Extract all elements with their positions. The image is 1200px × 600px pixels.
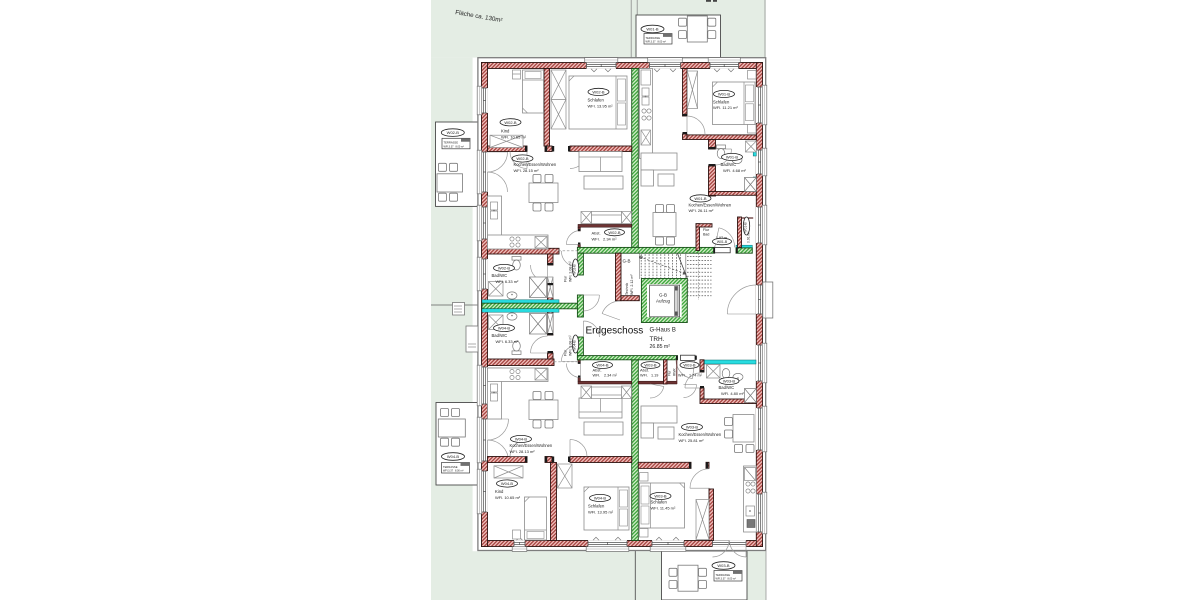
svg-text:W03-B: W03-B: [717, 563, 730, 568]
svg-text:WFl.3.37 8.00 m²: WFl.3.37 8.00 m²: [444, 146, 465, 149]
svg-text:Bad/WC: Bad/WC: [492, 273, 508, 278]
svg-text:Schlafen: Schlafen: [588, 98, 605, 103]
svg-text:W04-B: W04-B: [594, 496, 607, 501]
svg-text:Kochen/Essen/Wohnen: Kochen/Essen/Wohnen: [514, 162, 557, 167]
svg-text:TERRASSE: TERRASSE: [443, 465, 458, 469]
svg-text:Schlafen: Schlafen: [651, 500, 668, 505]
svg-text:Flur: Flur: [668, 370, 672, 376]
svg-text:Kind: Kind: [501, 129, 510, 134]
svg-text:Schlafen: Schlafen: [713, 99, 730, 104]
svg-text:WFl. 28.15 m²: WFl. 28.15 m²: [514, 168, 540, 173]
svg-text:WFl. 4.80 m²: WFl. 4.80 m²: [721, 391, 745, 396]
svg-text:W01-B: W01-B: [726, 155, 739, 160]
svg-text:W02-B: W02-B: [592, 89, 605, 94]
svg-text:1.19: 1.19: [651, 373, 658, 377]
svg-text:W02-B: W02-B: [608, 230, 621, 235]
svg-text:W02-B: W02-B: [447, 130, 460, 135]
svg-text:WFl. 13.95 m²: WFl. 13.95 m²: [588, 509, 614, 514]
svg-text:TRH.: TRH.: [650, 336, 665, 343]
svg-text:0.91 m²: 0.91 m²: [747, 231, 751, 243]
svg-text:W02-B: W02-B: [498, 266, 511, 271]
svg-text:W01-B: W01-B: [744, 222, 748, 233]
svg-text:WFl. 11.45 m²: WFl. 11.45 m²: [651, 505, 676, 510]
svg-text:W03-B: W03-B: [654, 494, 667, 499]
svg-text:Bad/WC: Bad/WC: [492, 333, 508, 338]
svg-text:Kochen/Essen/Wohnen: Kochen/Essen/Wohnen: [510, 443, 553, 448]
svg-text:RWR: RWR: [673, 368, 677, 376]
svg-text:Technik: Technik: [625, 283, 629, 295]
svg-text:WFl. 6.33 m²: WFl. 6.33 m²: [496, 339, 520, 344]
svg-text:WFl. 6.33 m²: WFl. 6.33 m²: [496, 279, 520, 284]
svg-text:W02-B: W02-B: [573, 264, 577, 275]
svg-text:Abst.: Abst.: [640, 368, 649, 373]
svg-text:Bad/WC: Bad/WC: [719, 385, 735, 390]
svg-text:W01-B: W01-B: [717, 240, 728, 244]
svg-text:Bad/WC: Bad/WC: [721, 162, 737, 167]
svg-text:W04-B: W04-B: [498, 326, 511, 331]
svg-text:W04-B: W04-B: [515, 437, 528, 442]
svg-text:WFl.3.37 8.00 m²: WFl.3.37 8.00 m²: [716, 578, 737, 581]
svg-text:Schlafen: Schlafen: [588, 504, 605, 509]
svg-text:G-Haus B: G-Haus B: [650, 328, 676, 334]
svg-text:W04-B: W04-B: [447, 454, 460, 459]
svg-text:WFl. 10.65 m²: WFl. 10.65 m²: [495, 495, 521, 500]
svg-text:WFl. 11.21 m²: WFl. 11.21 m²: [713, 105, 738, 110]
svg-text:WFl.: WFl.: [678, 373, 686, 377]
svg-text:WFl. 28.13 m²: WFl. 28.13 m²: [510, 449, 536, 454]
svg-text:Abst.: Abst.: [593, 368, 602, 373]
svg-text:1.74 m²: 1.74 m²: [689, 373, 703, 377]
svg-text:WFl. 4.68 m²: WFl. 4.68 m²: [723, 168, 747, 173]
svg-text:WFl. 13.95 m²: WFl. 13.95 m²: [588, 103, 614, 108]
svg-text:TERRASSE: TERRASSE: [716, 573, 731, 577]
svg-text:W04-B: W04-B: [501, 481, 514, 486]
svg-text:Bad: Bad: [703, 233, 709, 237]
svg-text:Erdgeschoss: Erdgeschoss: [586, 326, 644, 337]
svg-text:WFl.3.37 8.00 m²: WFl.3.37 8.00 m²: [646, 41, 667, 44]
svg-text:Aufzug: Aufzug: [656, 299, 671, 304]
svg-text:WFl. 25.81 m²: WFl. 25.81 m²: [679, 438, 705, 443]
svg-text:G-B: G-B: [659, 293, 667, 298]
svg-text:W04-B: W04-B: [573, 340, 577, 351]
svg-text:2.34 m²: 2.34 m²: [604, 373, 618, 377]
svg-text:W01-B: W01-B: [646, 27, 659, 32]
svg-text:WFl. 10.65 m²: WFl. 10.65 m²: [501, 134, 527, 139]
svg-text:WFl. 26.11 m²: WFl. 26.11 m²: [689, 208, 714, 213]
svg-text:WFl.3.37 8.00 m²: WFl.3.37 8.00 m²: [443, 470, 464, 473]
svg-text:Flur: Flur: [564, 275, 568, 282]
svg-text:W03-B: W03-B: [686, 425, 699, 430]
svg-text:G-B: G-B: [623, 259, 631, 264]
svg-text:W01-B: W01-B: [694, 196, 707, 201]
svg-text:Abst.: Abst.: [592, 230, 601, 235]
svg-text:Flur: Flur: [703, 228, 710, 232]
svg-text:Kochen/Essen/Wohnen: Kochen/Essen/Wohnen: [689, 202, 732, 207]
svg-text:TERRASSE: TERRASSE: [444, 141, 459, 145]
svg-text:Kind: Kind: [495, 489, 504, 494]
svg-text:W02-B: W02-B: [504, 120, 517, 125]
svg-text:WFl.: WFl.: [593, 373, 601, 377]
svg-text:26.85 m²: 26.85 m²: [650, 344, 671, 350]
svg-text:W02-B: W02-B: [516, 156, 529, 161]
svg-text:W03-B: W03-B: [683, 363, 696, 368]
svg-text:TERRASSE: TERRASSE: [646, 36, 661, 40]
svg-text:W03-B: W03-B: [723, 379, 736, 384]
svg-text:Flur: Flur: [564, 349, 568, 356]
svg-text:WFl. 2.12 m²: WFl. 2.12 m²: [630, 274, 634, 295]
svg-text:Kochen/Essen/Wohnen: Kochen/Essen/Wohnen: [679, 432, 722, 437]
svg-text:WFl.: WFl.: [640, 373, 648, 377]
svg-text:W01-B: W01-B: [718, 92, 731, 97]
svg-text:WFl.: WFl.: [592, 236, 600, 241]
svg-text:2.34 m²: 2.34 m²: [603, 236, 617, 241]
